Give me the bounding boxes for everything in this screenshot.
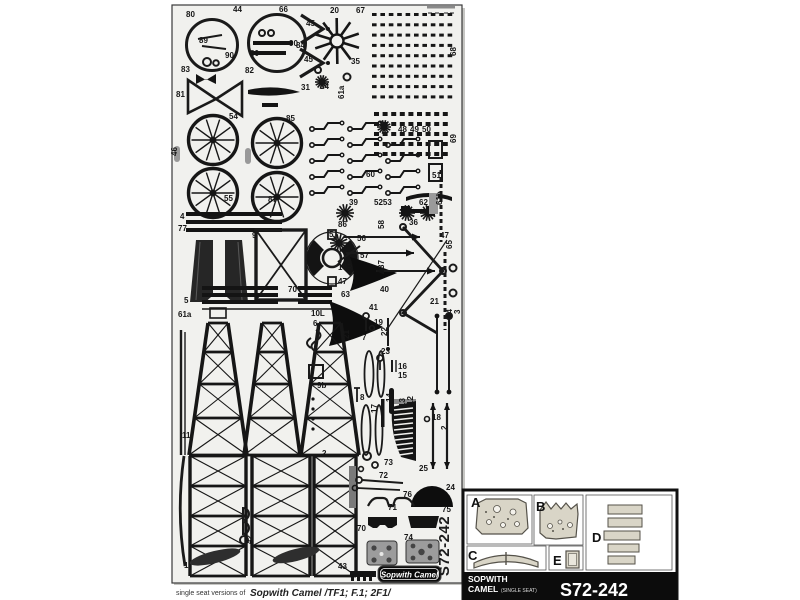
part-number: 12 xyxy=(406,396,415,405)
part-number: 10R xyxy=(338,263,353,272)
part-number: 47 xyxy=(440,231,449,240)
part-number: 62 xyxy=(419,198,428,207)
product-scan: Sopwith Camel S72-242 804466206745458435… xyxy=(0,0,800,600)
photo-etch-sheet: Sopwith Camel S72-242 804466206745458435… xyxy=(170,5,465,586)
inset-part-e xyxy=(566,551,579,568)
part-number: 36 xyxy=(409,218,418,227)
part-number: 86 xyxy=(338,220,347,229)
part-number: 40 xyxy=(380,285,389,294)
part-number: 65 xyxy=(445,240,454,249)
part-number: 2 xyxy=(322,449,327,458)
part-number: 70 xyxy=(357,524,366,533)
part-number: 21 xyxy=(430,297,439,306)
part-number: 10L xyxy=(311,309,325,318)
part-number: 5 xyxy=(329,230,334,239)
part-number: 31 xyxy=(301,83,310,92)
part-number: 83 xyxy=(181,65,190,74)
inset-label-e: E xyxy=(553,553,562,568)
part-number: 57 xyxy=(360,251,369,260)
inset-title-band: SOPWITH CAMEL (SINGLE SEAT) S72-242 xyxy=(463,572,677,600)
part-number: 70 xyxy=(288,285,297,294)
part-number: 19 xyxy=(374,318,383,327)
part-number: 77 xyxy=(178,224,187,233)
part-number: 47 xyxy=(338,277,347,286)
part-number: 11 xyxy=(182,431,191,440)
part-number: 61b xyxy=(435,191,444,205)
inset-label-a: A xyxy=(471,495,481,510)
part-number: 15 xyxy=(398,371,407,380)
inset-band-line2: CAMEL xyxy=(468,584,498,594)
part-number: 85 xyxy=(286,114,295,123)
painted-parts-inset: A B C D E SOPWITH CAMEL (SINGLE SEAT) S7… xyxy=(463,490,677,600)
inset-label-b: B xyxy=(536,499,545,514)
part-number: 37 xyxy=(377,260,386,269)
part-number: 67 xyxy=(356,6,365,15)
badge-label: Sopwith Camel xyxy=(381,571,439,580)
part-number: 80 xyxy=(250,49,259,58)
part-number: 5 xyxy=(184,296,189,305)
part-number: 69 xyxy=(449,134,458,143)
part-number: 61a xyxy=(178,310,192,319)
part-number: 39 xyxy=(349,198,358,207)
sheet-code-vertical: S72-242 xyxy=(436,516,453,576)
caption-title: Sopwith Camel /TF1; F.1; 2F1/ xyxy=(250,588,392,599)
part-number: 14 xyxy=(385,393,394,402)
part-number: 49 xyxy=(410,125,419,134)
inset-label-c: C xyxy=(468,548,478,563)
part-number: 60 xyxy=(366,170,375,179)
inset-band-suffix: (SINGLE SEAT) xyxy=(501,588,537,594)
part-number: 5253 xyxy=(374,198,392,207)
part-number: 21 xyxy=(342,330,351,339)
part-number: 61a xyxy=(337,85,346,99)
part-number: 44 xyxy=(233,5,242,14)
part-number: 1 xyxy=(184,561,189,570)
part-number: 81 xyxy=(176,90,185,99)
part-number: 3 xyxy=(453,309,462,314)
part-number: 7 xyxy=(362,333,367,342)
part-number: 9b xyxy=(317,381,326,390)
part-number: 90 xyxy=(225,51,234,60)
inset-band-line1: SOPWITH xyxy=(468,574,508,584)
part-number: 41 xyxy=(369,303,378,312)
part-number: 9 xyxy=(252,231,257,240)
part-number: 6 xyxy=(313,319,318,328)
part-number: 90 xyxy=(289,39,298,48)
part-number: 45 xyxy=(304,55,313,64)
part-number: 45 xyxy=(306,19,315,28)
part-number: 54 xyxy=(229,112,238,121)
artwork: Sopwith Camel S72-242 804466206745458435… xyxy=(0,0,800,600)
part-number: 42 xyxy=(245,535,254,544)
part-number: 43 xyxy=(338,562,347,571)
inset-label-d: D xyxy=(592,530,601,545)
part-number: 75 xyxy=(442,505,451,514)
part-number: 55 xyxy=(224,194,233,203)
part-number: 46 xyxy=(170,147,179,156)
part-number: 2 xyxy=(440,425,449,430)
part-number: 66 xyxy=(279,5,288,14)
part-number: 68 xyxy=(449,47,458,56)
part-number: 16 xyxy=(398,362,407,371)
part-number: 34 xyxy=(320,82,329,91)
part-number: 35 xyxy=(351,57,360,66)
part-number: 74 xyxy=(404,533,413,542)
part-number: 87 xyxy=(268,195,277,204)
part-number: 8 xyxy=(360,393,365,402)
part-number: 25 xyxy=(419,464,428,473)
part-number: 73 xyxy=(384,458,393,467)
part-number: 50 xyxy=(422,125,431,134)
part-number: 23 xyxy=(381,347,390,356)
part-number: 24 xyxy=(446,483,455,492)
part-number: 63 xyxy=(341,290,350,299)
part-number: 80 xyxy=(186,10,195,19)
part-number: 17 xyxy=(370,404,379,413)
part-number: 51 xyxy=(432,171,441,180)
nameplate-badge: Sopwith Camel xyxy=(378,566,441,582)
part-number: 82 xyxy=(245,66,254,75)
part-number: 20 xyxy=(330,6,339,15)
part-number: 56 xyxy=(357,234,366,243)
part-number: 76 xyxy=(403,490,412,499)
inset-part-a xyxy=(476,499,528,534)
part-number: 72 xyxy=(379,471,388,480)
part-number: 89 xyxy=(199,36,208,45)
part-number: 58 xyxy=(377,220,386,229)
caption-prefix: single seat versions of xyxy=(176,590,245,597)
part-number: 4 xyxy=(180,212,185,221)
inset-band-code: S72-242 xyxy=(560,580,628,600)
part-number: 71 xyxy=(388,503,397,512)
part-number: 18 xyxy=(432,413,441,422)
inset-part-b xyxy=(540,502,578,539)
part-number: 48 xyxy=(398,125,407,134)
part-number: 22 xyxy=(380,327,389,336)
